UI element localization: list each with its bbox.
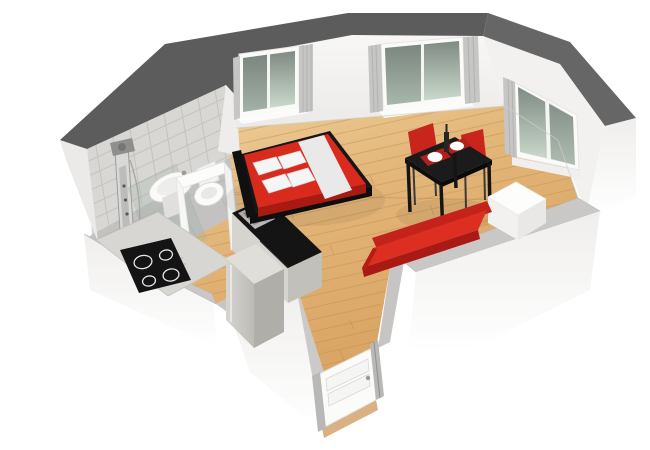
- plate: [450, 142, 464, 151]
- curtain: [463, 36, 480, 104]
- floorplan-render: [0, 0, 650, 450]
- shower-head-icon: [118, 143, 126, 151]
- curtain: [368, 44, 383, 113]
- plate: [428, 152, 443, 162]
- floorplan-svg: [0, 0, 650, 450]
- window-back-right: [368, 36, 480, 118]
- window-back-left: [233, 44, 313, 124]
- door-handle-icon: [366, 376, 370, 380]
